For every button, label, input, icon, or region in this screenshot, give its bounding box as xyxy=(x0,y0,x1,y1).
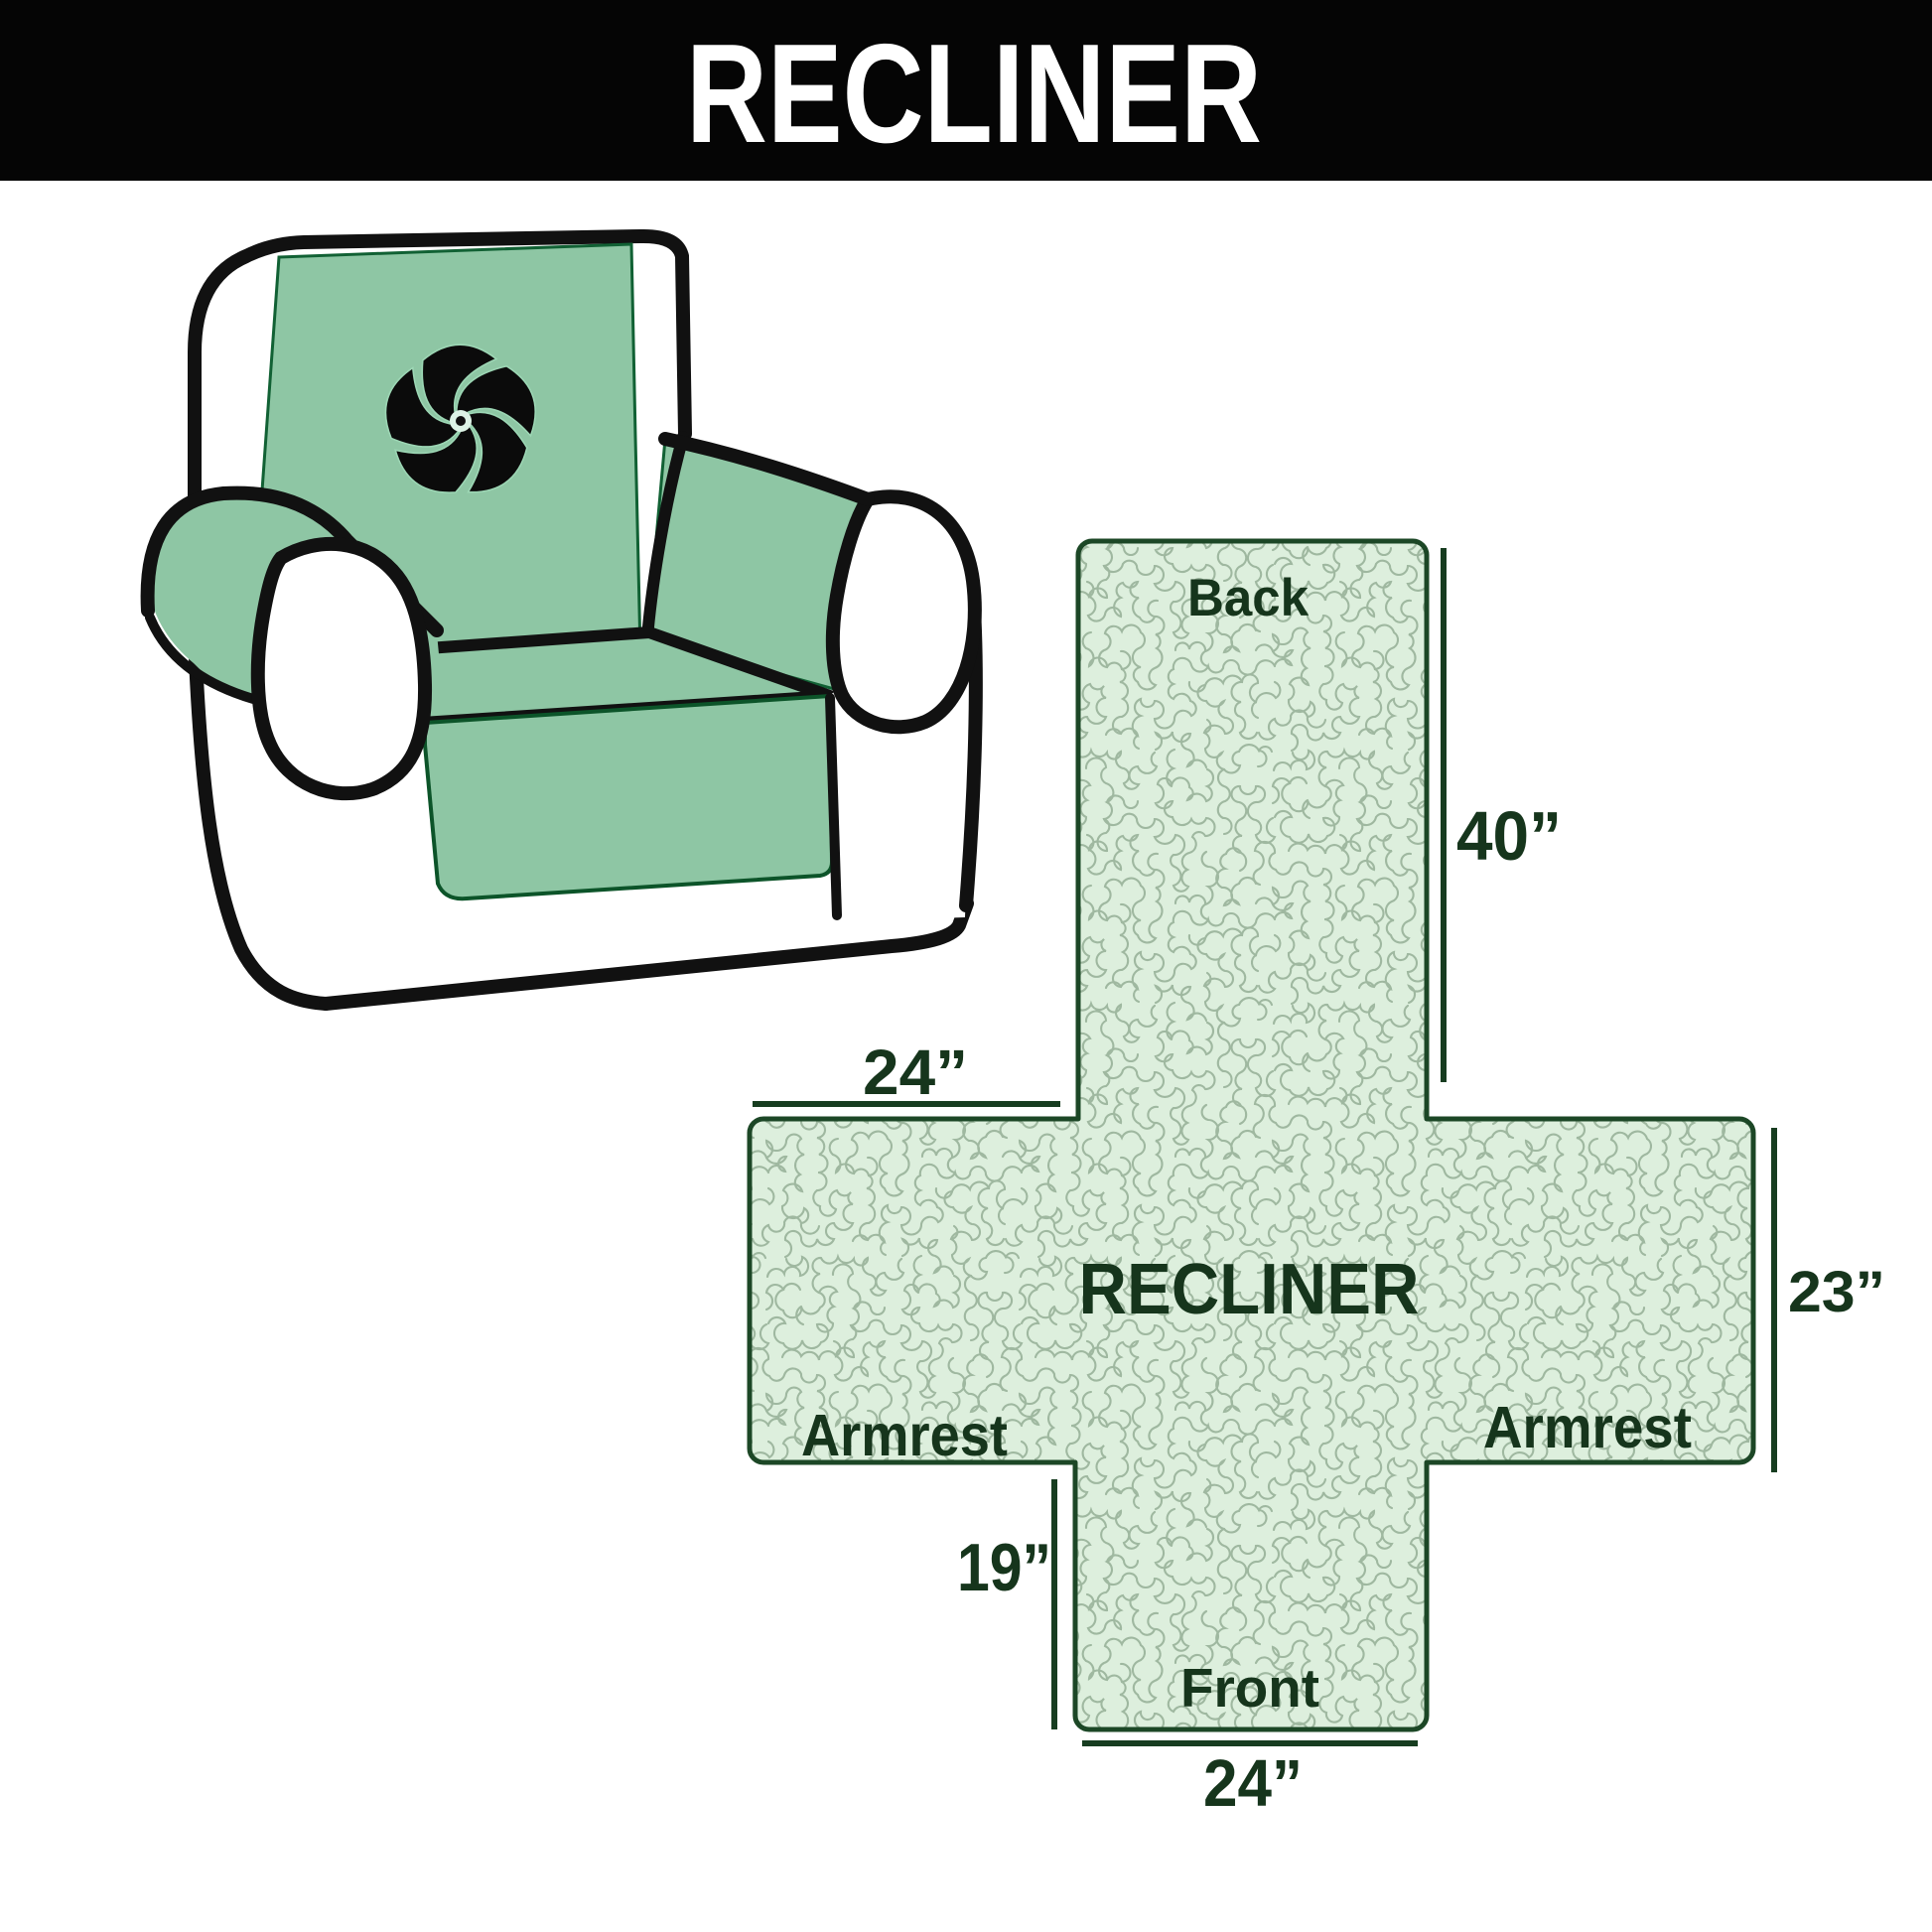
svg-text:RECLINER: RECLINER xyxy=(686,15,1262,173)
svg-text:19”: 19” xyxy=(957,1530,1051,1605)
svg-text:Front: Front xyxy=(1180,1657,1319,1719)
svg-text:40”: 40” xyxy=(1456,797,1562,875)
svg-text:RECLINER: RECLINER xyxy=(1079,1250,1420,1329)
svg-text:Armrest: Armrest xyxy=(801,1403,1008,1468)
svg-text:24”: 24” xyxy=(863,1036,968,1108)
svg-text:Back: Back xyxy=(1187,569,1310,627)
svg-text:23”: 23” xyxy=(1788,1260,1885,1324)
svg-text:24”: 24” xyxy=(1203,1746,1303,1821)
svg-text:Armrest: Armrest xyxy=(1483,1395,1692,1460)
